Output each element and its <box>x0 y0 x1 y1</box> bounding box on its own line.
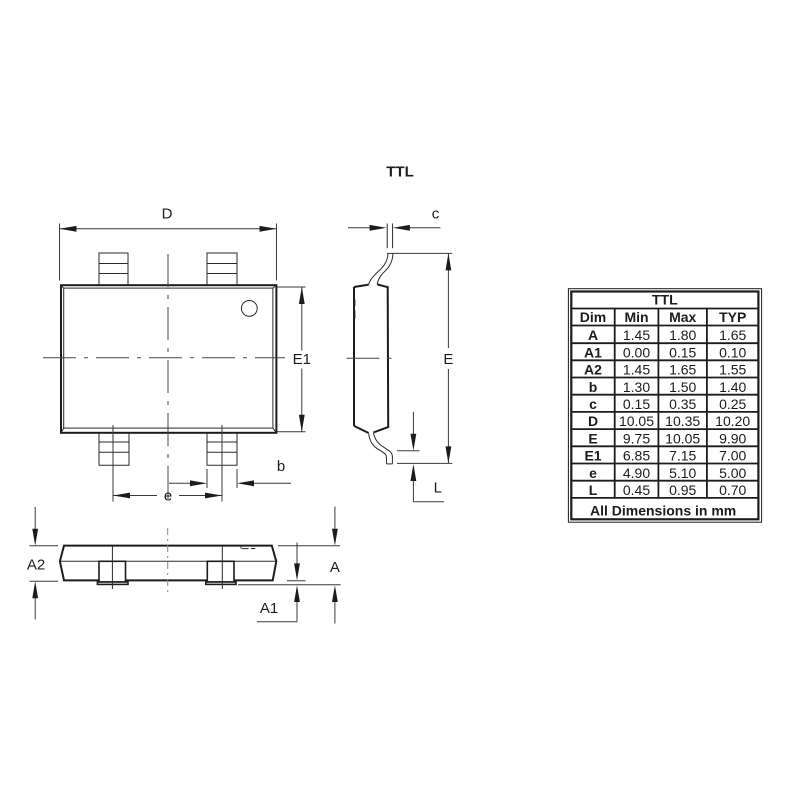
svg-text:1.30: 1.30 <box>623 379 650 395</box>
svg-text:0.35: 0.35 <box>669 396 696 412</box>
svg-text:10.05: 10.05 <box>665 430 700 446</box>
svg-text:1.65: 1.65 <box>719 327 746 343</box>
svg-text:b: b <box>277 458 285 475</box>
svg-text:b: b <box>589 379 598 395</box>
svg-text:Min: Min <box>624 309 648 325</box>
svg-text:9.90: 9.90 <box>719 430 746 446</box>
svg-text:A2: A2 <box>584 362 602 378</box>
svg-text:0.95: 0.95 <box>669 482 696 498</box>
svg-text:1.55: 1.55 <box>719 362 746 378</box>
svg-text:Dim: Dim <box>580 309 606 325</box>
svg-text:A2: A2 <box>27 557 45 574</box>
svg-text:10.20: 10.20 <box>715 413 750 429</box>
svg-text:c: c <box>589 396 597 412</box>
svg-text:0.10: 0.10 <box>719 344 746 360</box>
svg-text:1.80: 1.80 <box>669 327 696 343</box>
svg-text:0.45: 0.45 <box>623 482 650 498</box>
svg-text:5.00: 5.00 <box>719 465 746 481</box>
svg-text:7.00: 7.00 <box>719 448 746 464</box>
svg-text:L: L <box>434 480 442 497</box>
svg-text:10.05: 10.05 <box>619 413 654 429</box>
svg-text:e: e <box>164 488 172 505</box>
svg-text:A1: A1 <box>260 600 278 617</box>
svg-text:9.75: 9.75 <box>623 430 650 446</box>
svg-text:0.00: 0.00 <box>623 344 650 360</box>
svg-text:5.10: 5.10 <box>669 465 696 481</box>
svg-text:D: D <box>162 206 173 223</box>
svg-text:TTL: TTL <box>652 291 678 307</box>
svg-text:1.40: 1.40 <box>719 379 746 395</box>
svg-text:L: L <box>589 482 598 498</box>
svg-text:TTL: TTL <box>386 164 414 181</box>
svg-text:Max: Max <box>669 309 696 325</box>
svg-text:All Dimensions in mm: All Dimensions in mm <box>590 503 736 519</box>
svg-text:E: E <box>443 351 453 368</box>
svg-text:0.25: 0.25 <box>719 396 746 412</box>
svg-text:c: c <box>432 206 440 223</box>
svg-text:E1: E1 <box>584 448 601 464</box>
svg-text:0.15: 0.15 <box>669 344 696 360</box>
svg-text:1.45: 1.45 <box>623 362 650 378</box>
svg-text:e: e <box>589 465 597 481</box>
svg-text:E1: E1 <box>293 351 311 368</box>
svg-text:1.65: 1.65 <box>669 362 696 378</box>
svg-text:6.85: 6.85 <box>623 448 650 464</box>
svg-text:10.35: 10.35 <box>665 413 700 429</box>
svg-text:7.15: 7.15 <box>669 448 696 464</box>
svg-text:1.45: 1.45 <box>623 327 650 343</box>
svg-text:1.50: 1.50 <box>669 379 696 395</box>
svg-text:0.70: 0.70 <box>719 482 746 498</box>
svg-text:4.90: 4.90 <box>623 465 650 481</box>
svg-text:A1: A1 <box>584 344 602 360</box>
svg-text:A: A <box>588 327 598 343</box>
svg-text:E: E <box>588 430 597 446</box>
svg-text:TYP: TYP <box>719 309 746 325</box>
svg-text:A: A <box>330 559 340 576</box>
svg-text:0.15: 0.15 <box>623 396 650 412</box>
svg-text:D: D <box>588 413 598 429</box>
